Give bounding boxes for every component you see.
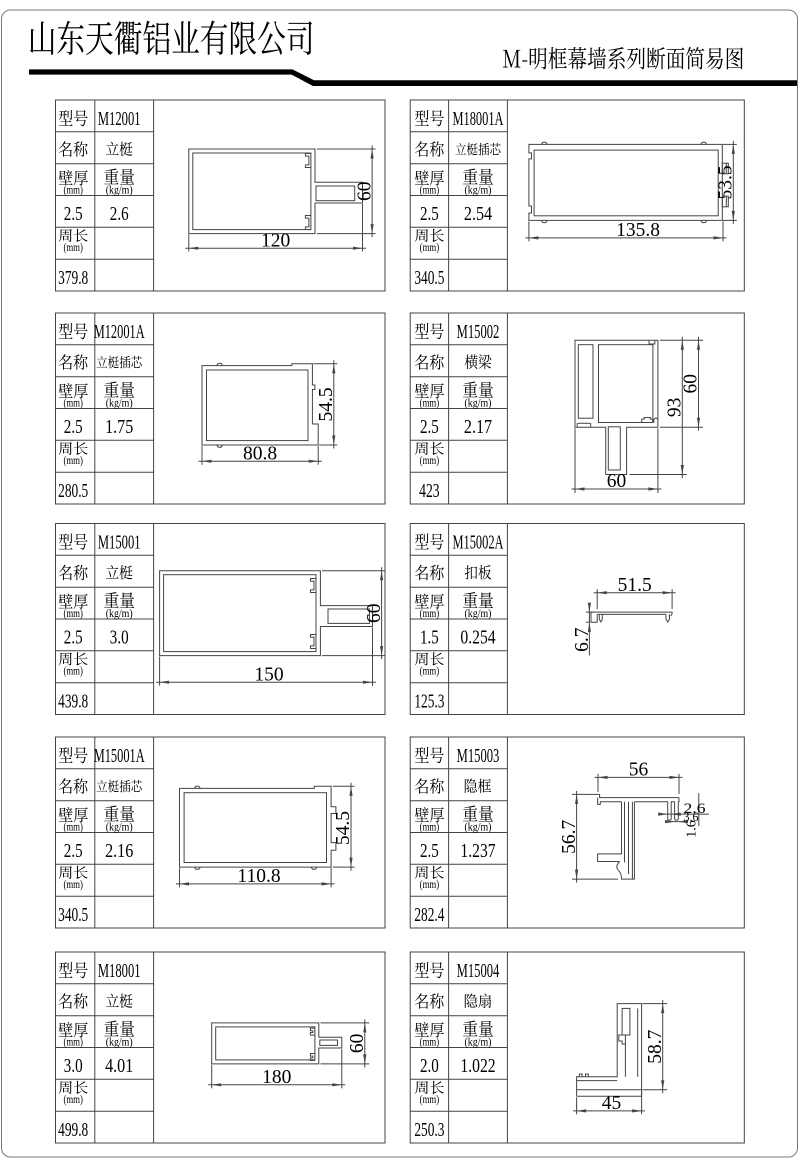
svg-text:M15004: M15004 <box>457 960 500 982</box>
svg-text:56: 56 <box>629 760 649 781</box>
svg-text:(mm): (mm) <box>63 455 83 467</box>
svg-text:3.0: 3.0 <box>64 1055 83 1077</box>
svg-text:(kg/m): (kg/m) <box>106 822 133 834</box>
svg-text:(kg/m): (kg/m) <box>465 1037 492 1049</box>
svg-text:6.7: 6.7 <box>572 627 593 652</box>
svg-text:250.3: 250.3 <box>414 1119 444 1141</box>
svg-text:2.0: 2.0 <box>420 1055 439 1077</box>
svg-text:(mm): (mm) <box>420 398 440 410</box>
svg-text:51.5: 51.5 <box>618 575 652 596</box>
svg-text:2.5: 2.5 <box>64 416 83 438</box>
svg-text:(mm): (mm) <box>63 242 83 254</box>
svg-text:1.75: 1.75 <box>105 416 133 438</box>
svg-text:2.5: 2.5 <box>420 416 439 438</box>
svg-text:(kg/m): (kg/m) <box>106 1037 133 1049</box>
svg-text:2.17: 2.17 <box>464 416 492 438</box>
svg-text:2.16: 2.16 <box>105 840 133 862</box>
svg-text:(mm): (mm) <box>63 608 83 620</box>
svg-text:M18001: M18001 <box>98 960 141 982</box>
svg-text:M15001A: M15001A <box>94 745 145 767</box>
svg-text:60: 60 <box>681 374 702 394</box>
svg-text:(mm): (mm) <box>63 398 83 410</box>
svg-text:60: 60 <box>607 471 627 492</box>
svg-text:2.5: 2.5 <box>420 203 439 225</box>
svg-text:(kg/m): (kg/m) <box>106 398 133 410</box>
svg-text:M15002A: M15002A <box>453 531 504 553</box>
svg-text:80.8: 80.8 <box>243 443 277 464</box>
svg-text:(kg/m): (kg/m) <box>106 608 133 620</box>
svg-text:56.7: 56.7 <box>559 819 580 853</box>
svg-text:(mm): (mm) <box>420 242 440 254</box>
svg-text:(kg/m): (kg/m) <box>465 822 492 834</box>
svg-text:0.254: 0.254 <box>460 627 495 649</box>
svg-text:150: 150 <box>254 664 283 685</box>
svg-text:(kg/m): (kg/m) <box>465 185 492 197</box>
svg-text:(kg/m): (kg/m) <box>465 608 492 620</box>
svg-text:(mm): (mm) <box>63 822 83 834</box>
svg-text:4.01: 4.01 <box>105 1055 133 1077</box>
svg-text:2.54: 2.54 <box>464 203 492 225</box>
svg-text:M15003: M15003 <box>457 745 500 767</box>
svg-text:(kg/m): (kg/m) <box>465 398 492 410</box>
svg-text:60: 60 <box>364 603 385 623</box>
svg-text:135.8: 135.8 <box>616 220 660 241</box>
svg-text:340.5: 340.5 <box>414 267 444 289</box>
svg-text:379.8: 379.8 <box>58 267 88 289</box>
svg-text:1.237: 1.237 <box>460 840 495 862</box>
svg-text:499.8: 499.8 <box>58 1119 88 1141</box>
svg-text:120: 120 <box>261 230 290 251</box>
svg-text:(mm): (mm) <box>420 665 440 677</box>
svg-text:M15001: M15001 <box>98 531 141 553</box>
svg-text:280.5: 280.5 <box>58 480 88 502</box>
svg-text:2.5: 2.5 <box>64 840 83 862</box>
svg-text:(mm): (mm) <box>63 1094 83 1106</box>
svg-text:(mm): (mm) <box>420 879 440 891</box>
svg-text:180: 180 <box>262 1067 291 1088</box>
svg-text:M12001: M12001 <box>98 108 141 130</box>
svg-text:(mm): (mm) <box>420 1037 440 1049</box>
svg-text:1.022: 1.022 <box>460 1055 495 1077</box>
svg-text:54.5: 54.5 <box>316 387 337 421</box>
svg-text:60: 60 <box>347 1034 368 1054</box>
svg-text:2.5: 2.5 <box>64 203 83 225</box>
svg-text:2.5: 2.5 <box>420 840 439 862</box>
svg-text:(mm): (mm) <box>420 1094 440 1106</box>
svg-text:(mm): (mm) <box>63 879 83 891</box>
svg-text:60: 60 <box>354 182 375 202</box>
svg-text:2.6: 2.6 <box>110 203 129 225</box>
svg-text:423: 423 <box>419 480 440 502</box>
svg-text:(mm): (mm) <box>63 665 83 677</box>
svg-text:340.5: 340.5 <box>58 904 88 926</box>
svg-text:(mm): (mm) <box>420 185 440 197</box>
svg-text:439.8: 439.8 <box>58 690 88 712</box>
svg-text:(kg/m): (kg/m) <box>106 185 133 197</box>
svg-text:282.4: 282.4 <box>414 904 444 926</box>
svg-text:(mm): (mm) <box>63 1037 83 1049</box>
svg-text:2.5: 2.5 <box>64 627 83 649</box>
svg-text:(mm): (mm) <box>63 185 83 197</box>
svg-text:93: 93 <box>665 398 686 418</box>
svg-text:53.5: 53.5 <box>716 165 737 199</box>
svg-text:1.6: 1.6 <box>685 820 700 838</box>
svg-text:58.7: 58.7 <box>645 1029 666 1063</box>
svg-text:M12001A: M12001A <box>94 321 145 343</box>
svg-text:125.3: 125.3 <box>414 690 444 712</box>
svg-text:110.8: 110.8 <box>237 866 280 887</box>
svg-text:M15002: M15002 <box>457 321 500 343</box>
svg-text:(mm): (mm) <box>420 822 440 834</box>
svg-text:3.0: 3.0 <box>110 627 129 649</box>
svg-text:(mm): (mm) <box>420 608 440 620</box>
svg-text:45: 45 <box>602 1093 622 1114</box>
svg-text:(mm): (mm) <box>420 455 440 467</box>
svg-text:54.5: 54.5 <box>333 811 354 845</box>
svg-text:1.5: 1.5 <box>420 627 439 649</box>
svg-text:M18001A: M18001A <box>453 108 504 130</box>
